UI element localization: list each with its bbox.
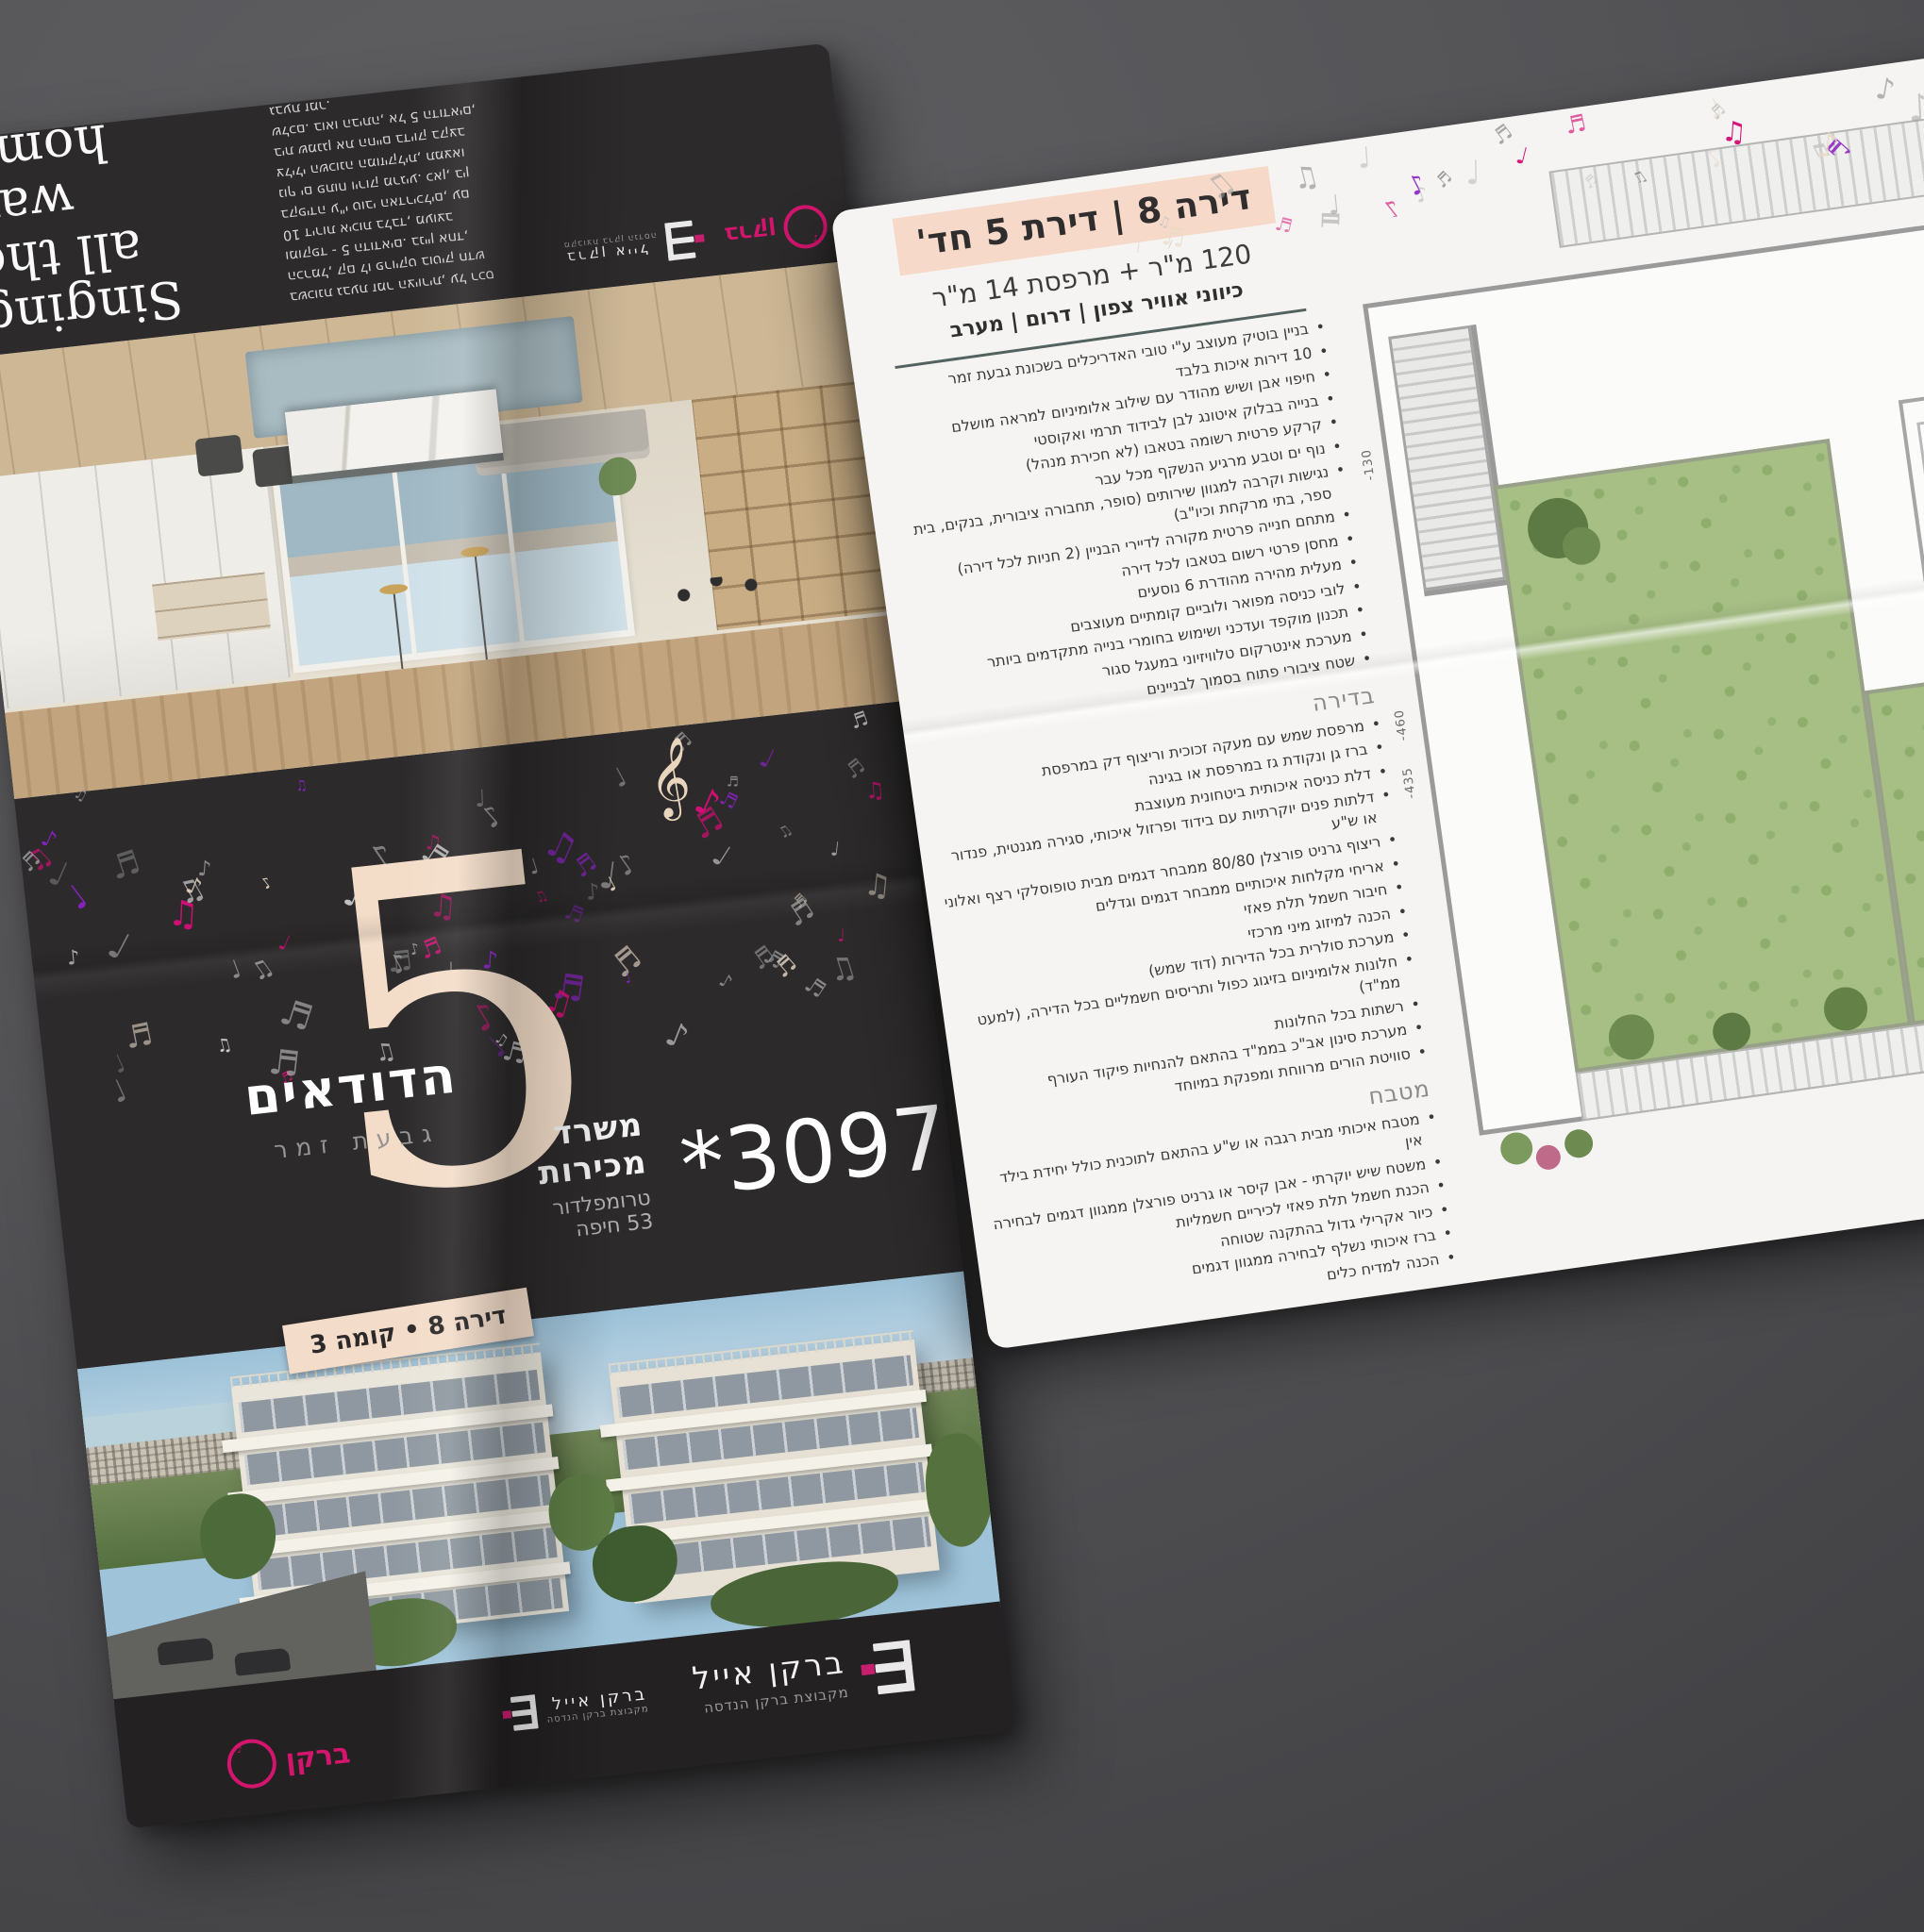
flower-bed bbox=[1534, 1143, 1562, 1171]
music-note-icon: ♫ bbox=[71, 786, 90, 805]
music-note-icon: ♬ bbox=[123, 1019, 156, 1055]
footer-brand-text: ברקן אייל מקבוצת ברקן הנדסה bbox=[691, 1643, 850, 1718]
photo-backdrop: ברקן ברקן אייל מקבוצת ברקן הנדסה בשכונת … bbox=[0, 0, 1924, 1932]
music-note-icon: ♬ bbox=[782, 894, 820, 932]
music-note-icon: ♪ bbox=[1907, 91, 1924, 129]
spec-items: •מרפסת שמש עם מעקה זכוכית וריצוף דק במרפ… bbox=[921, 712, 1431, 1125]
music-note-icon: ♪ bbox=[1412, 183, 1431, 208]
music-note-icon: ♫ bbox=[864, 779, 886, 803]
treble-clef-icon: 𝄞 bbox=[649, 736, 693, 819]
footer-brand-small: ברקן אייל מקבוצת ברקן הנדסה bbox=[501, 1682, 650, 1732]
sales-office-address: טרומפלדור 53 חיפה bbox=[542, 1187, 655, 1245]
barkan-wordmark: ברקן bbox=[284, 1737, 352, 1776]
spec-item: •אסלות תלויות ומכלי הדחה סמויים bbox=[1009, 1336, 1469, 1350]
music-note-icon: ♪ bbox=[1873, 74, 1897, 106]
music-note-icon: ♩ bbox=[226, 958, 244, 984]
e-logo-icon bbox=[859, 1640, 915, 1696]
music-note-icon: ♪ bbox=[716, 970, 735, 991]
music-note-icon: ♩ bbox=[107, 1075, 132, 1108]
contact-block: *3097 משרד מכירות טרומפלדור 53 חיפה bbox=[577, 1071, 956, 1242]
music-note-icon: ♫ bbox=[776, 822, 795, 841]
music-note-icon: ♩ bbox=[756, 743, 778, 774]
music-note-icon: ♪ bbox=[661, 1018, 693, 1057]
music-note-icon: ♩ bbox=[1514, 144, 1530, 170]
headline-english: Singing all the way home bbox=[0, 99, 267, 347]
music-note-icon: ♫ bbox=[1199, 166, 1241, 208]
intro-paragraph: בשכונת גבעת זמר הציורית, על רכס הכרמל, ק… bbox=[268, 73, 543, 307]
barkan-eyal-logo: ברקן אייל מקבוצת ברקן הנדסה bbox=[562, 219, 707, 272]
phone-number: *3097 bbox=[676, 1086, 954, 1216]
barkan-logo: ברקן bbox=[225, 1728, 353, 1790]
sales-office-title: משרד מכירות bbox=[532, 1106, 648, 1192]
barkan-circle-icon bbox=[781, 203, 829, 251]
barkan-circle-icon bbox=[225, 1737, 278, 1790]
music-note-icon: ♬ bbox=[800, 973, 828, 1002]
spec-items: •בניין בוטיק מעוצב ע"י טובי האדריכלים בש… bbox=[865, 316, 1377, 733]
brand-text: ברקן אייל מקבוצת ברקן הנדסה bbox=[562, 230, 659, 267]
top-brand-logos: ברקן ברקן אייל מקבוצת ברקן הנדסה bbox=[561, 203, 829, 275]
divider bbox=[659, 1119, 669, 1216]
music-note-icon: ♩ bbox=[837, 928, 845, 945]
music-note-icon: ♩ bbox=[609, 764, 631, 792]
music-note-icon: ♩ bbox=[61, 880, 94, 917]
music-note-icon: ♩ bbox=[1465, 157, 1481, 190]
music-note-icon: ♫ bbox=[862, 869, 893, 902]
music-note-icon: ♩ bbox=[707, 841, 734, 873]
music-note-icon: ♩ bbox=[275, 931, 293, 955]
music-note-icon: ♫ bbox=[215, 1036, 235, 1057]
flower-bed bbox=[1498, 1130, 1534, 1166]
music-note-icon: ♪ bbox=[66, 948, 80, 969]
music-note-icon: ♩ bbox=[1357, 144, 1373, 175]
barkan-logo: ברקן bbox=[723, 203, 829, 258]
music-note-icon: ♫ bbox=[1290, 161, 1323, 196]
music-note-icon: ♬ bbox=[1488, 121, 1516, 149]
footer-brand-small-text: ברקן אייל מקבוצת ברקן הנדסה bbox=[544, 1684, 649, 1725]
armchair bbox=[194, 434, 243, 476]
barkan-wordmark: ברקן bbox=[724, 217, 778, 249]
sales-office: משרד מכירות טרומפלדור 53 חיפה bbox=[532, 1106, 654, 1245]
measurement-label: -460 bbox=[1393, 708, 1412, 741]
music-note-icon: ♩ bbox=[102, 926, 135, 968]
music-note-icon: ♬ bbox=[1433, 169, 1456, 192]
e-logo-icon bbox=[664, 219, 706, 260]
spec-sheet-page: ♪♬♫♫♪♩♫♬♬♪♫♩♩♩♪♬♬♩♪♩♬♫♬♪♩♪♫♬♬♫ דירה 8 | … bbox=[830, 46, 1924, 1350]
measurement-label: -130 bbox=[1360, 448, 1379, 481]
footer-brand-main: ברקן אייל מקבוצת ברקן הנדסה bbox=[691, 1636, 915, 1717]
music-note-icon: ♫ bbox=[247, 955, 279, 987]
e-logo-icon bbox=[501, 1694, 539, 1732]
music-note-icon: ♬ bbox=[848, 708, 871, 732]
music-note-icon: ♩ bbox=[829, 839, 841, 858]
music-note-icon: ♬ bbox=[107, 845, 144, 885]
music-note-icon: ♬ bbox=[1564, 111, 1589, 139]
measurement-label: -435 bbox=[1400, 766, 1419, 799]
music-note-icon: ♪ bbox=[258, 874, 275, 892]
music-note-icon: ♪ bbox=[1700, 143, 1729, 173]
music-note-icon: ♬ bbox=[276, 994, 316, 1038]
flower-bed bbox=[1563, 1127, 1595, 1159]
